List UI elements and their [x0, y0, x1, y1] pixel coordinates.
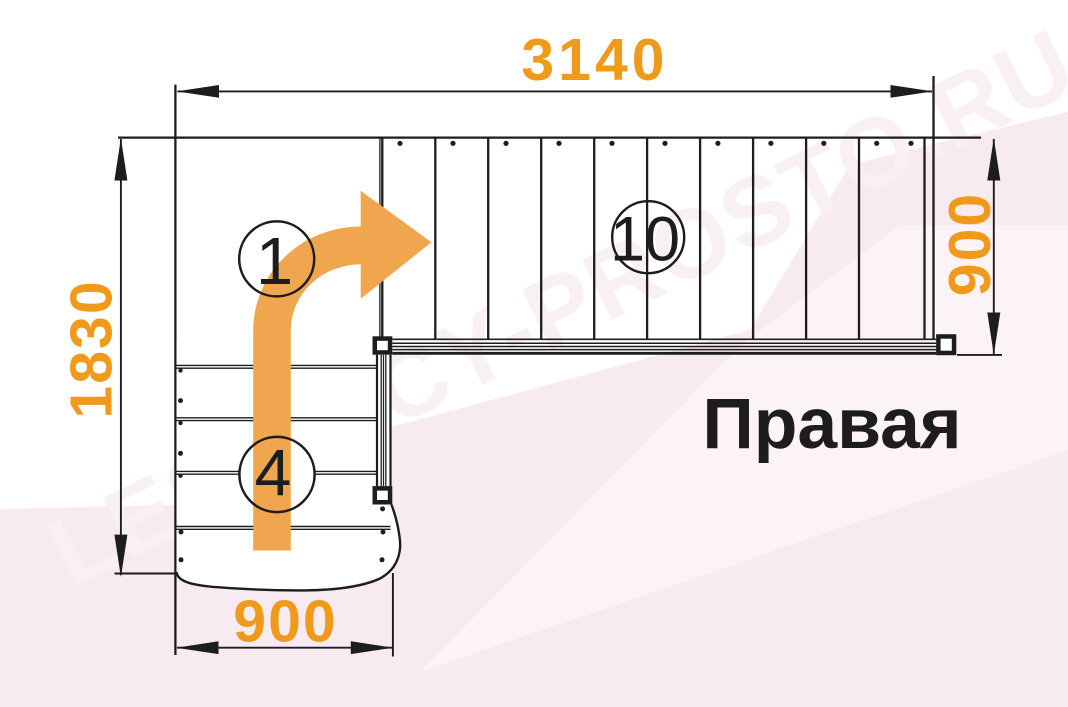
svg-text:1: 1: [256, 224, 293, 299]
svg-text:900: 900: [233, 589, 337, 655]
svg-text:1830: 1830: [59, 279, 125, 418]
svg-text:4: 4: [255, 436, 292, 510]
svg-text:3140: 3140: [521, 27, 668, 93]
svg-text:900: 900: [937, 192, 1003, 296]
svg-text:Правая: Правая: [702, 384, 961, 464]
svg-text:10: 10: [610, 205, 680, 275]
